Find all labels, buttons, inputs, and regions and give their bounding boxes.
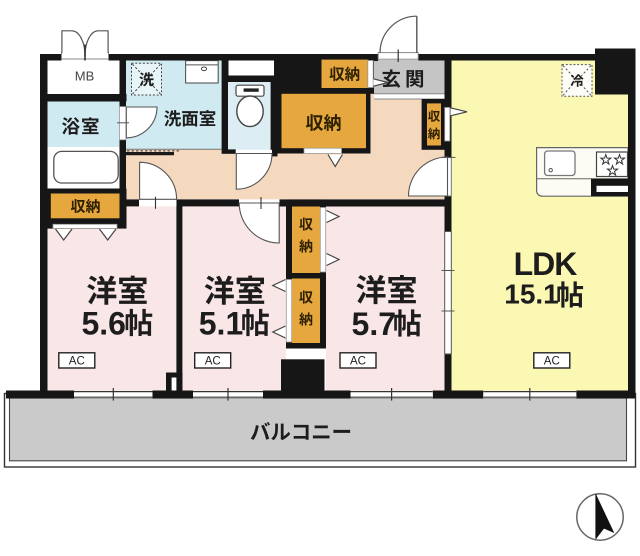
svg-text:AC: AC (544, 356, 560, 368)
svg-text:AC: AC (205, 356, 221, 368)
svg-text:5.7: 5.7 (352, 306, 396, 342)
svg-text:15.1: 15.1 (504, 279, 559, 310)
svg-text:AC: AC (69, 356, 85, 368)
svg-text:5.1: 5.1 (199, 306, 243, 342)
svg-text:MB: MB (75, 69, 95, 84)
svg-text:AC: AC (350, 356, 366, 368)
svg-text:LDK: LDK (514, 246, 578, 282)
svg-text:5.6: 5.6 (81, 306, 125, 342)
